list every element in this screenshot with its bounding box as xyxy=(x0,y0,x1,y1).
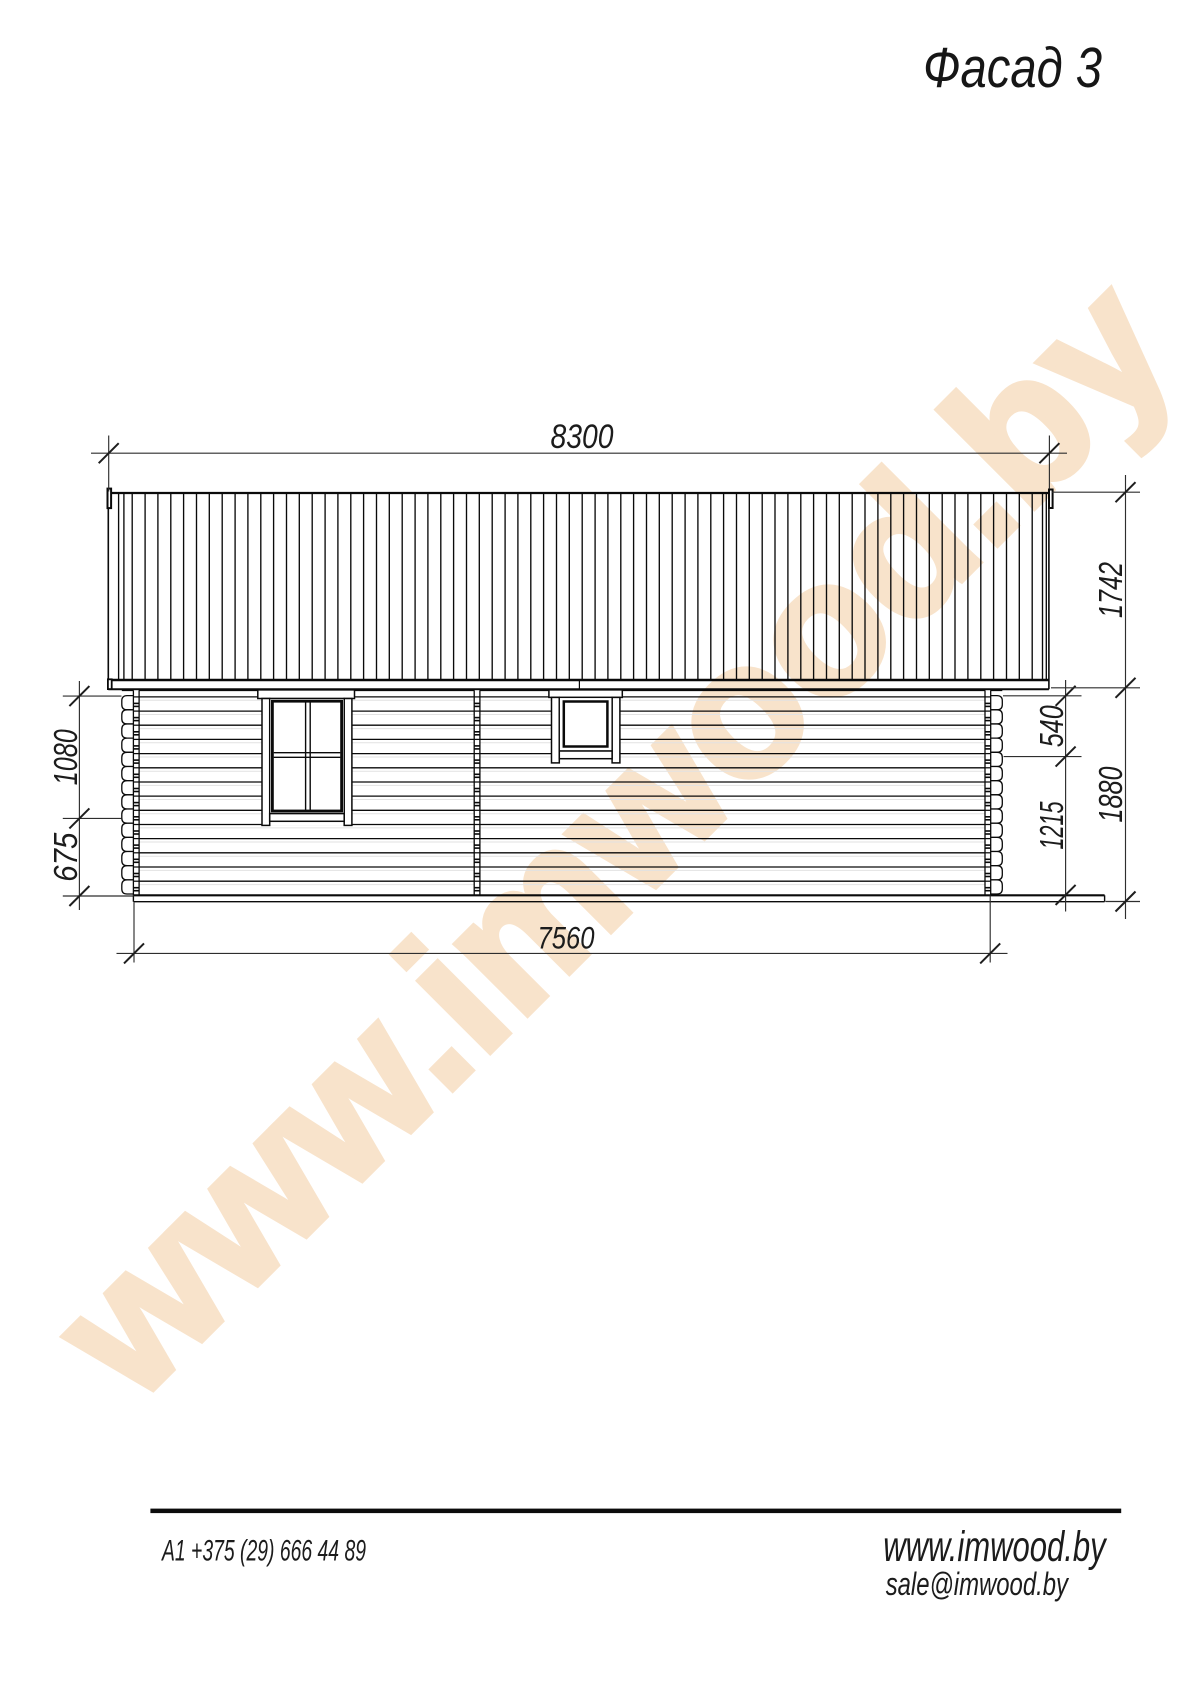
svg-text:sale@imwood.by: sale@imwood.by xyxy=(886,1566,1070,1602)
svg-text:675: 675 xyxy=(47,832,84,882)
svg-text:1742: 1742 xyxy=(1092,562,1129,618)
svg-text:1080: 1080 xyxy=(47,729,84,785)
svg-text:А1 +375 (29) 666 44 89: А1 +375 (29) 666 44 89 xyxy=(161,1535,366,1568)
svg-text:Фасад 3: Фасад 3 xyxy=(923,36,1102,100)
svg-text:7560: 7560 xyxy=(538,919,595,955)
svg-text:1215: 1215 xyxy=(1033,801,1070,849)
svg-text:540: 540 xyxy=(1033,705,1070,747)
svg-text:1880: 1880 xyxy=(1092,766,1129,822)
svg-text:8300: 8300 xyxy=(551,418,614,456)
svg-text:www.imwood.by: www.imwood.by xyxy=(883,1523,1107,1571)
